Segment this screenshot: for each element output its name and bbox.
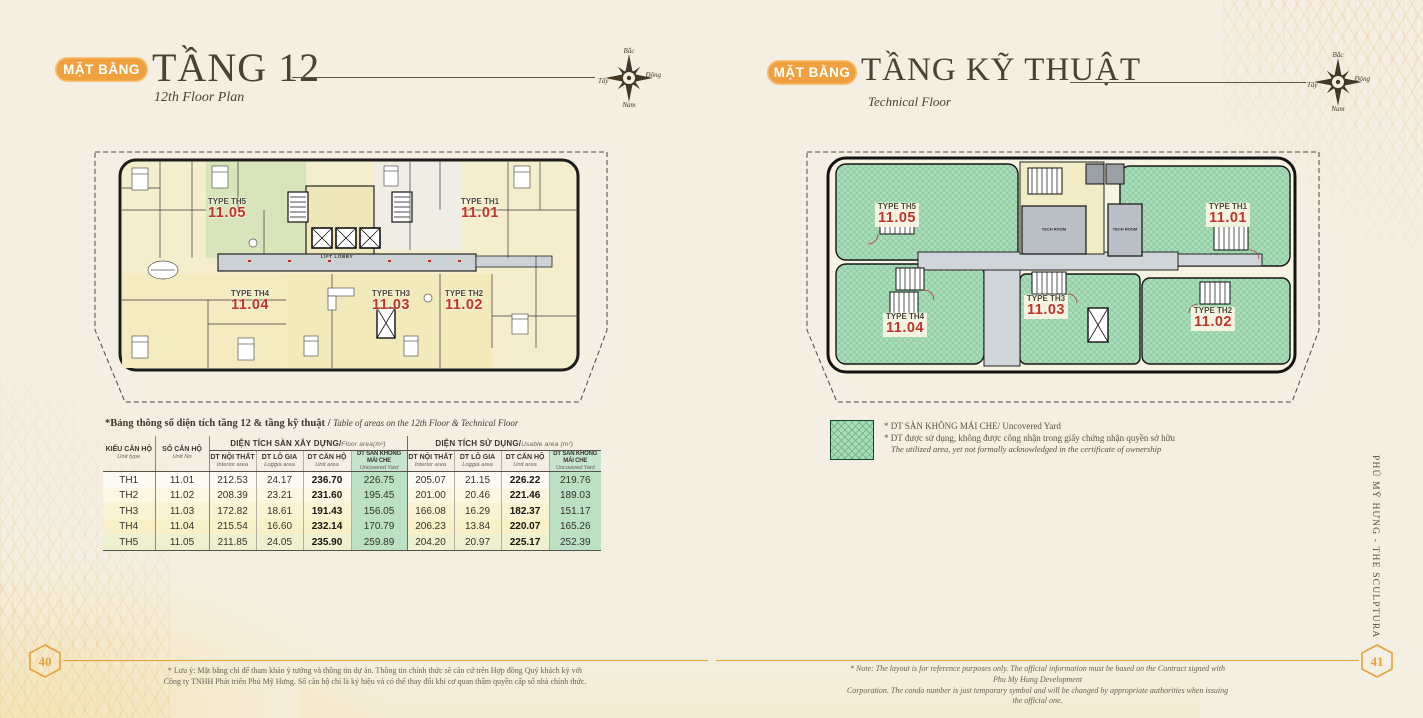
table-group-header-row: KIỂU CĂN HỘUnit type SỐ CĂN HỘUnit No DI… [103, 436, 601, 451]
unit-label-th3: TYPE TH3 11.03 [1024, 295, 1068, 319]
table-row: TH511.05 211.8524.05 235.90259.89 204.20… [103, 534, 601, 550]
lift-lobby-label: LIFT LOBBY [321, 254, 354, 259]
compass-east-label: Đông [645, 71, 661, 79]
unit-label-th3: TYPE TH3 11.03 [372, 290, 410, 314]
page-title-left: TẦNG 12 [152, 44, 320, 91]
col-header-unit-no: SỐ CĂN HỘUnit No [155, 436, 209, 472]
area-table: KIỂU CĂN HỘUnit type SỐ CĂN HỘUnit No DI… [103, 436, 601, 551]
table-row: TH111.01 212.5324.17 236.70226.75 205.07… [103, 472, 601, 488]
unit-label-th4: TYPE TH4 11.04 [231, 290, 269, 314]
floor-plan-technical [800, 148, 1325, 418]
table-caption-en: Table of areas on the 12th Floor & Techn… [333, 418, 518, 428]
unit-number: 11.01 [1206, 211, 1250, 226]
compass-west-label: Tây [1307, 81, 1318, 89]
footnote-right-line1: * Note: The layout is for reference purp… [845, 664, 1230, 686]
legend-line-3: The utilized area, yet not formally ackn… [884, 444, 1175, 455]
legend-text: * DT SÀN KHÔNG MÁI CHE/ Uncovered Yard *… [884, 420, 1175, 456]
unit-label-th2: TYPE TH2 11.02 [1191, 307, 1235, 331]
unit-label-th5: TYPE TH5 11.05 [208, 198, 246, 222]
table-row: TH311.03 172.8218.61 191.43156.05 166.08… [103, 503, 601, 519]
legend-line-2: * DT được sử dụng, không được công nhận … [884, 432, 1175, 444]
unit-number: 11.04 [883, 321, 927, 336]
unit-number: 11.01 [461, 206, 499, 221]
footnote-left: * Lưu ý: Mặt bằng chỉ để tham khảo ý tưở… [160, 666, 590, 688]
section-badge-right: MẶT BẰNG [767, 60, 857, 85]
page-number-badge-left: 40 [28, 644, 62, 678]
brochure-spread: MẶT BẰNG TẦNG 12 12th Floor Plan Bắc Đôn… [0, 0, 1423, 718]
section-badge-left: MẶT BẰNG [55, 57, 148, 82]
footnote-left-line1: * Lưu ý: Mặt bằng chỉ để tham khảo ý tưở… [160, 666, 590, 677]
elevator-shafts [312, 228, 380, 248]
legend-line-1: * DT SÀN KHÔNG MÁI CHE/ Uncovered Yard [884, 420, 1175, 432]
corridor-extension [476, 256, 552, 267]
page-subtitle-left: 12th Floor Plan [154, 90, 244, 106]
footnote-left-line2: Công ty TNHH Phát triển Phú Mỹ Hưng. Số … [160, 677, 590, 688]
footnote-right-line2: Corporation. The condo number is just te… [845, 686, 1230, 708]
unit-number: 11.05 [208, 206, 246, 221]
compass-north-label: Bắc [1333, 51, 1344, 59]
unit-number: 11.04 [231, 298, 269, 313]
table-row: TH411.04 215.5416.60 232.14170.79 206.23… [103, 519, 601, 535]
tech-room-label: TECH ROOM [1042, 228, 1066, 233]
core-stairwell [1028, 168, 1062, 194]
subcol-interior-1: DT NỘI THẤTInterior area [209, 451, 256, 472]
compass-east-label: Đông [1354, 75, 1370, 83]
compass-south-label: Nam [622, 101, 635, 109]
hexagon-icon: 40 [28, 644, 62, 678]
compass-west-label: Tây [598, 77, 609, 85]
title-rule-right [1070, 82, 1306, 83]
unit-label-th2: TYPE TH2 11.02 [445, 290, 483, 314]
compass-rose-left: Bắc Đông Tây Nam [597, 46, 661, 110]
group-header-floor-area: DIỆN TÍCH SÀN XÂY DỰNG/Floor area(m²) [209, 436, 407, 451]
unit-label-th4: TYPE TH4 11.04 [883, 313, 927, 337]
unit-label-th1: TYPE TH1 11.01 [461, 198, 499, 222]
side-project-name: PHÚ MỸ HƯNG - THE SCULPTURA [1364, 455, 1380, 655]
page-title-right: TẦNG KỸ THUẬT [861, 52, 1141, 89]
hexagon-icon: 41 [1360, 644, 1394, 678]
footnote-right: * Note: The layout is for reference purp… [845, 664, 1230, 707]
unit-number: 11.05 [875, 211, 919, 226]
unit-number: 11.03 [372, 298, 410, 313]
group-header-usable-area: DIỆN TÍCH SỬ DỤNG/Usable area (m²) [407, 436, 601, 451]
subcol-interior-2: DT NỘI THẤTInterior area [407, 451, 454, 472]
unit-number: 11.03 [1024, 303, 1068, 318]
subcol-unit-area-1: DT CĂN HỘUnit area [303, 451, 351, 472]
table-row: TH211.02 208.3923.21 231.60195.45 201.00… [103, 488, 601, 504]
col-header-unit-type: KIỂU CĂN HỘUnit type [103, 436, 155, 472]
compass-rose-right: Bắc Đông Tây Nam [1306, 50, 1370, 114]
unit-number: 11.02 [445, 298, 483, 313]
title-rule-left [292, 77, 595, 78]
table-caption-vi: *Bảng thông số diện tích tầng 12 & tầng … [105, 418, 333, 429]
unit-number: 11.02 [1191, 315, 1235, 330]
table-caption: *Bảng thông số diện tích tầng 12 & tầng … [105, 418, 518, 429]
subcol-uncovered-2: DT SÀN KHÔNG MÁI CHEUncovered Yard [549, 451, 601, 472]
compass-north-label: Bắc [624, 47, 635, 55]
page-number-right: 41 [1371, 654, 1384, 669]
page-number-badge-right: 41 [1360, 644, 1394, 678]
subcol-loggia-2: DT LÔ GIALoggia area [454, 451, 501, 472]
subcol-uncovered-1: DT SÀN KHÔNG MÁI CHEUncovered Yard [351, 451, 407, 472]
subcol-unit-area-2: DT CĂN HỘUnit area [501, 451, 549, 472]
floor-plan-12f [88, 148, 613, 418]
page-subtitle-right: Technical Floor [868, 94, 951, 110]
corner-glow [0, 538, 420, 718]
unit-label-th1: TYPE TH1 11.01 [1206, 203, 1250, 227]
compass-south-label: Nam [1331, 105, 1344, 113]
tech-room-label: TECH ROOM [1113, 228, 1137, 233]
unit-label-th5: TYPE TH5 11.05 [875, 203, 919, 227]
footer-rule-left [63, 660, 708, 661]
footer-rule-right [716, 660, 1359, 661]
page-number-left: 40 [39, 654, 52, 669]
uncovered-yard-legend-swatch [830, 420, 874, 460]
subcol-loggia-1: DT LÔ GIALoggia area [256, 451, 303, 472]
